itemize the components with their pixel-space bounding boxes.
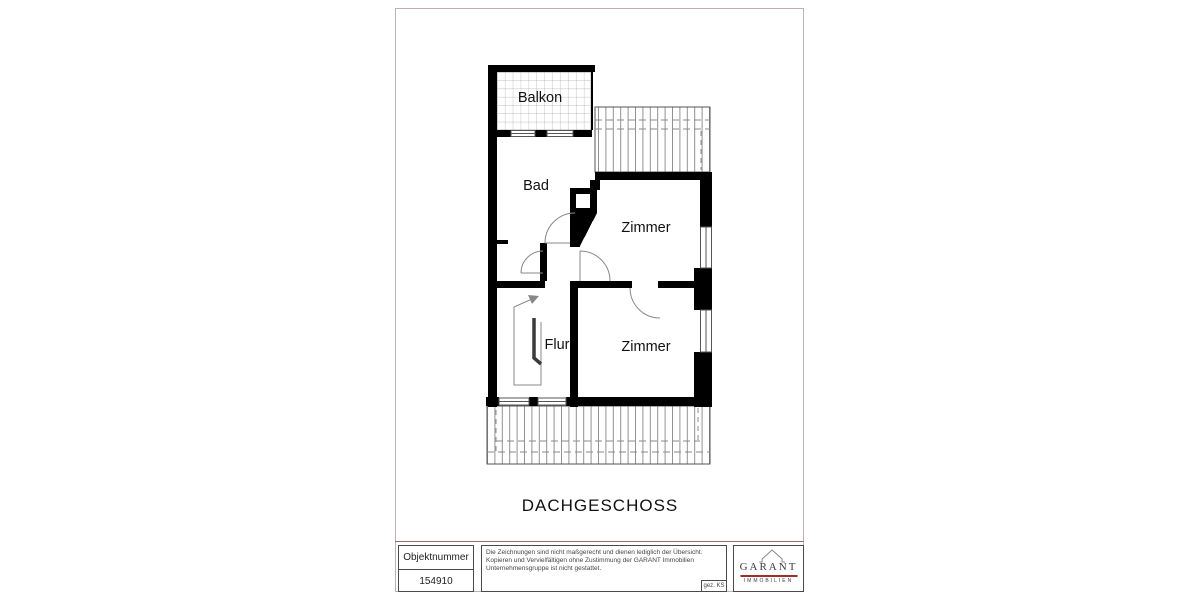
disclaimer-line-2: Kopieren und Vervielfältigen ohne Zustim… xyxy=(486,557,722,565)
roof-hatch-top xyxy=(595,107,710,172)
room-label-zimmer-top: Zimmer xyxy=(621,220,670,236)
room-label-bad: Bad xyxy=(523,178,549,194)
title-block-top-rule xyxy=(395,541,804,542)
stair-handrail xyxy=(534,318,541,364)
logo-box: GARANT IMMOBILIEN xyxy=(733,545,804,592)
floor-plan-page: Balkon Bad Zimmer Flur Zimmer DACHGESCHO… xyxy=(0,0,1200,600)
floor-plan-drawing xyxy=(480,60,720,470)
room-label-flur: Flur xyxy=(545,337,570,353)
roof-hatch-bottom xyxy=(487,406,710,464)
logo-red-rule xyxy=(740,575,797,577)
object-number-label: Objektnummer xyxy=(399,546,473,570)
disclaimer-line-1: Die Zeichnungen sind nicht maßgerecht un… xyxy=(486,549,722,557)
room-label-balkon: Balkon xyxy=(518,90,562,106)
object-number-value: 154910 xyxy=(399,570,473,592)
shaft-opening xyxy=(576,194,590,208)
disclaimer-line-3: Unternehmensgruppe ist nicht gestattet. xyxy=(486,565,722,573)
disclaimer-box: Die Zeichnungen sind nicht maßgerecht un… xyxy=(481,545,727,592)
room-label-zimmer-bottom: Zimmer xyxy=(621,339,670,355)
staircase xyxy=(514,295,541,385)
logo-brand-text: GARANT xyxy=(734,561,803,573)
garant-logo: GARANT IMMOBILIEN xyxy=(734,546,803,591)
object-number-box: Objektnummer 154910 xyxy=(398,545,474,592)
logo-subtitle-text: IMMOBILIEN xyxy=(734,578,803,584)
drawn-by-box: gez. KS xyxy=(701,580,727,592)
floor-title: DACHGESCHOSS xyxy=(522,496,679,516)
